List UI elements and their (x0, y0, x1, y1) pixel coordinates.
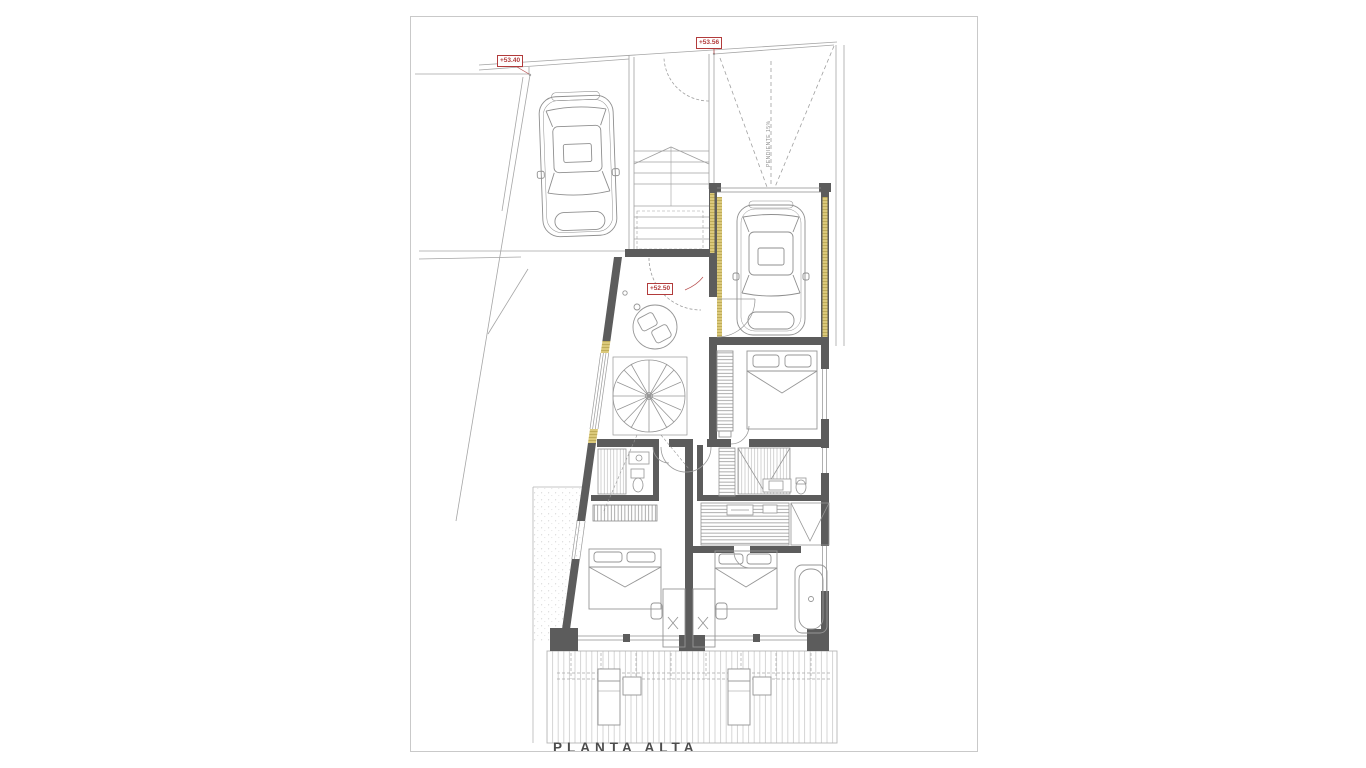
wardrobe (593, 505, 657, 521)
elevation-marker-entrance: +53.56 (696, 37, 722, 49)
floor-plan-svg (411, 17, 978, 752)
bathroom1 (598, 449, 649, 494)
car-top-view-driveway (534, 91, 621, 238)
dressing-room (701, 503, 829, 545)
elevation-value: +53.40 (500, 57, 520, 64)
bathroom2 (719, 448, 806, 496)
walls (550, 183, 831, 651)
bedroom3 (715, 551, 777, 609)
terrace-deck (547, 651, 837, 743)
elevation-value: +53.56 (699, 39, 719, 46)
elevation-marker-floor: +52.50 (647, 283, 673, 295)
ramp-slope-label: PENDIENTE 15% (766, 107, 772, 167)
sheet-title: PLANTA ALTA (553, 740, 698, 752)
bedroom2 (589, 549, 661, 609)
car-top-view-garage (733, 201, 809, 335)
wardrobe (717, 351, 733, 431)
garage-ramp (720, 46, 834, 187)
garage-door (710, 188, 828, 337)
elevation-value: +52.50 (650, 285, 670, 292)
elevation-marker-driveway: +53.40 (497, 55, 523, 67)
bedroom1 (717, 351, 817, 437)
drawing-sheet: +53.40 +53.56 +52.50 PENDIENTE 15% PLANT… (410, 16, 978, 752)
exterior-stairs (629, 54, 714, 257)
entry-seating (623, 291, 677, 349)
